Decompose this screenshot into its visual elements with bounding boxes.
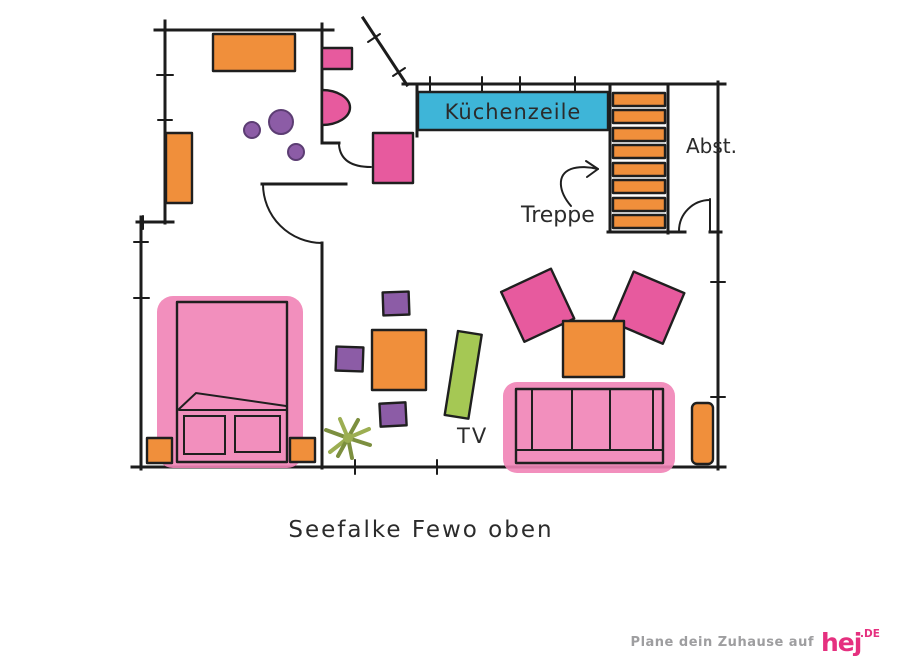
kitchen: Küchenzeile: [418, 92, 608, 130]
door-swing-arc: [263, 184, 322, 243]
plan-title: Seefalke Fewo oben: [288, 517, 553, 543]
floor-plan-canvas: Küchenzeile Treppe Abst.: [0, 0, 900, 665]
dining-chair: [336, 347, 364, 372]
dining-table: [372, 330, 426, 390]
stair-step: [613, 145, 665, 158]
tv-area: TV: [445, 331, 489, 448]
stair-step: [613, 110, 665, 123]
living-room: [501, 269, 713, 473]
wall-segment-diagonal: [363, 18, 407, 85]
hej-logo[interactable]: hej: [821, 628, 861, 657]
footer-branding: Plane dein Zuhause auf hej .DE: [631, 628, 880, 657]
sideboard: [213, 34, 295, 71]
stairs-label: Treppe: [520, 203, 595, 228]
bedroom: [147, 296, 315, 468]
floor-plan-page: Küchenzeile Treppe Abst.: [0, 0, 900, 665]
footer-tagline: Plane dein Zuhause auf: [631, 635, 814, 650]
plant-pot: [343, 433, 353, 443]
kitchen-unit-label: Küchenzeile: [445, 100, 582, 124]
dining-chair: [383, 292, 410, 316]
coffee-table: [563, 321, 624, 377]
washbasin: [322, 48, 352, 69]
nightstand: [147, 438, 172, 463]
stool: [269, 110, 293, 134]
room-top-left: [166, 34, 304, 203]
stair-step: [613, 128, 665, 141]
side-table: [692, 403, 713, 464]
sofa-watercolor-wash: [503, 382, 675, 473]
shower: [373, 133, 413, 183]
stairs-arrowhead: [586, 161, 598, 177]
hej-logo-tld[interactable]: .DE: [860, 628, 880, 640]
door-swing-arc: [339, 145, 371, 167]
stair-step: [613, 180, 665, 193]
storage-label: Abst.: [686, 134, 737, 158]
toilet: [322, 90, 350, 125]
tv-screen: [445, 331, 482, 419]
dining-chair: [379, 402, 406, 426]
door-swing-arc: [679, 200, 710, 231]
bathroom: [322, 48, 413, 183]
stool: [244, 122, 260, 138]
stool: [288, 144, 304, 160]
stair-step: [613, 163, 665, 176]
wardrobe: [166, 133, 192, 203]
staircase: [613, 93, 665, 228]
stair-step: [613, 215, 665, 228]
potted-plant: [326, 419, 370, 458]
bed-watercolor-wash: [157, 296, 303, 468]
nightstand: [290, 438, 315, 462]
stair-step: [613, 198, 665, 211]
tv-label: TV: [456, 424, 488, 448]
dining-area: [336, 292, 426, 427]
stair-step: [613, 93, 665, 106]
